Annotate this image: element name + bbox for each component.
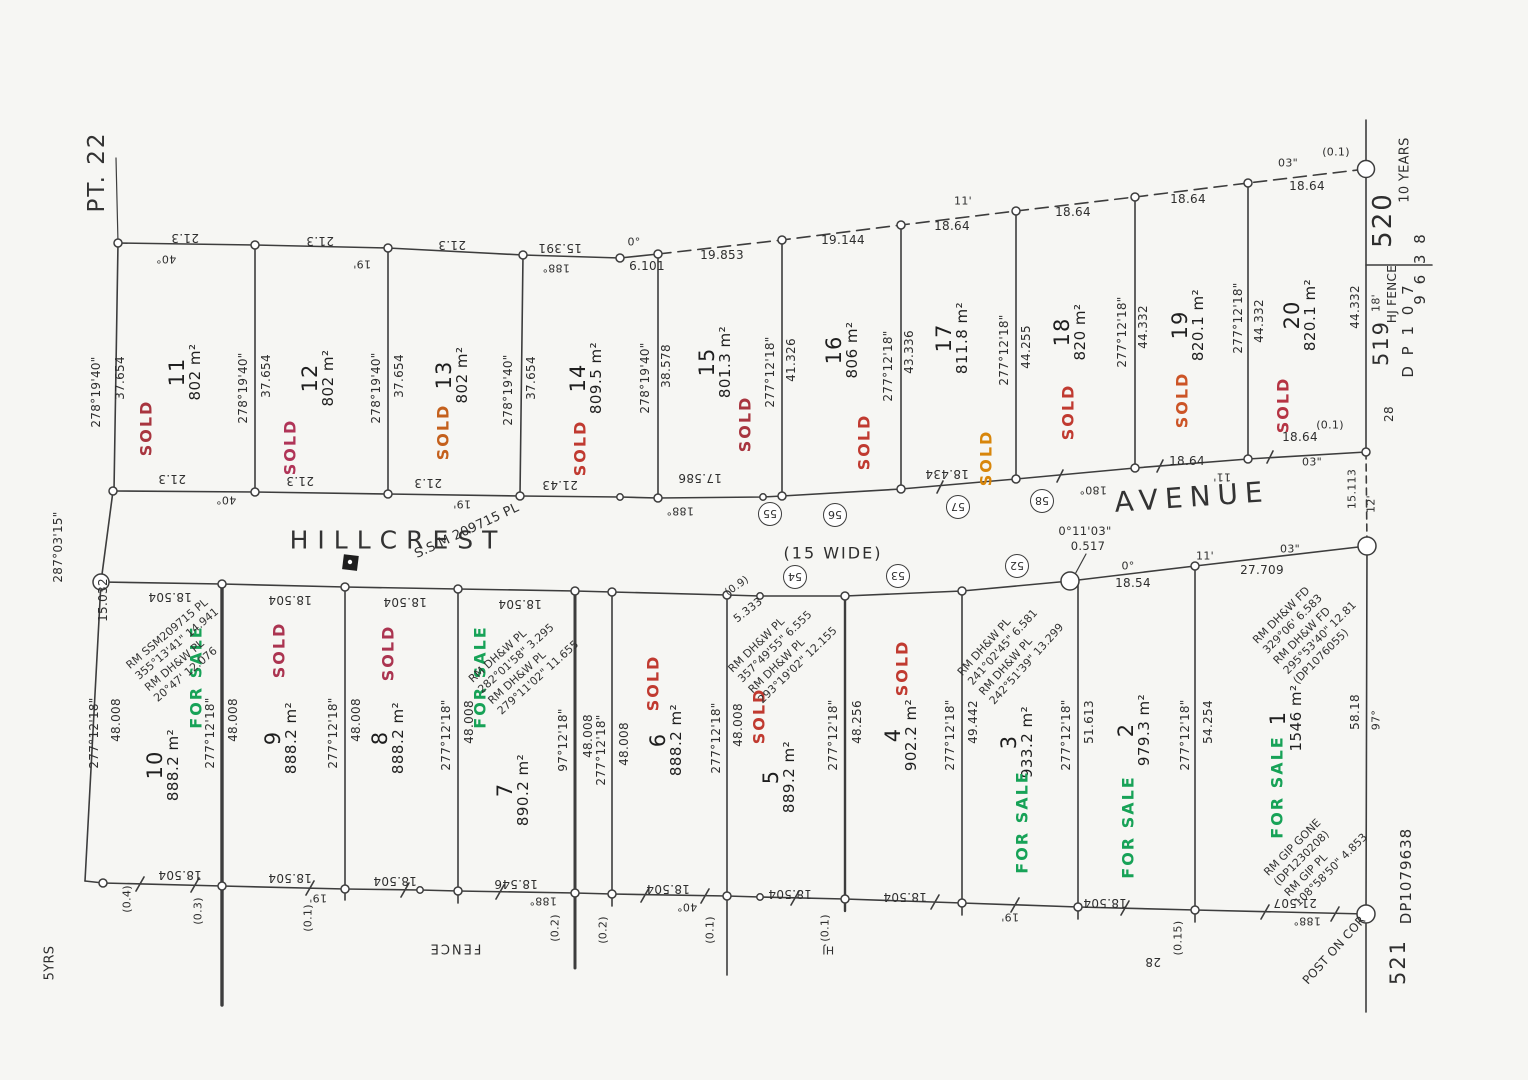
lot-2: 2979.3 m²	[1115, 694, 1153, 766]
dim-label: 18.504	[883, 890, 927, 904]
lot-area: 902.2 m²	[904, 699, 920, 771]
street-mark: 52	[1005, 554, 1029, 578]
angle-label: 0°	[627, 236, 640, 249]
lot-6: 6888.2 m²	[647, 704, 685, 776]
lot-status: SOLD	[855, 414, 874, 471]
dim-label: 6.101	[629, 259, 665, 273]
lot-12: 12802 m²	[299, 349, 337, 406]
lot-number: 16	[823, 321, 845, 378]
dp-number-bottom: DP1079638	[1397, 828, 1415, 924]
lot-number: 20	[1281, 279, 1303, 351]
angle-label: 40°	[677, 901, 697, 914]
boundary-bearing: 277°12'18"	[881, 330, 895, 401]
lot-area: 888.2 m²	[284, 702, 300, 774]
offset-label: (0.3)	[192, 897, 205, 925]
lot-area: 979.3 m²	[1137, 694, 1153, 766]
lot-area: 820.1 m²	[1303, 279, 1319, 351]
lot-area: 1546 m²	[1289, 684, 1305, 751]
boundary-distance: 44.332	[1136, 305, 1150, 349]
lot-number: 7	[494, 754, 516, 826]
lot-area: 889.2 m²	[782, 741, 798, 813]
fence-note-right: HJ FENCE	[1385, 265, 1399, 323]
boundary-distance: 51.613	[1082, 700, 1096, 744]
adjoining-lot-521: 521	[1386, 939, 1410, 985]
dim-label: 21.3	[286, 474, 314, 488]
boundary-distance: 43.336	[902, 330, 916, 374]
boundary-bearing: 277°12'18"	[997, 314, 1011, 385]
lot-number: 2	[1115, 694, 1137, 766]
boundary-distance: 48.008	[581, 714, 595, 758]
boundary-bearing: 277°12'18"	[594, 714, 608, 785]
boundary-bearing: 97°12'18"	[556, 708, 570, 771]
lot-status: SOLD	[893, 640, 912, 697]
angle-label: 11'	[1213, 471, 1231, 484]
street-mark: 56	[823, 503, 847, 527]
angle-label: 40°	[216, 494, 236, 507]
fence-note: HJ	[822, 944, 834, 957]
lot-area: 890.2 m²	[516, 754, 532, 826]
dim-label: 21.3	[171, 231, 199, 245]
boundary-distance: 41.326	[784, 338, 798, 382]
lot-number: 3	[998, 706, 1020, 778]
dim-label: 15.391	[538, 241, 582, 255]
boundary-bearing: 277°12'18"	[709, 702, 723, 773]
lot-17: 17811.8 m²	[933, 302, 971, 374]
dim-label: 27.709	[1240, 563, 1284, 577]
boundary-distance: 48.008	[731, 703, 745, 747]
lot-number: 5	[760, 741, 782, 813]
lot-16: 16806 m²	[823, 321, 861, 378]
lot-status: FOR SALE	[1119, 775, 1138, 878]
lot-status: FOR SALE	[1268, 735, 1287, 838]
boundary-distance: 37.654	[113, 356, 127, 400]
angle-label: 19'	[1001, 911, 1019, 924]
angle-label: 188°	[542, 262, 570, 275]
ssm-square-icon	[342, 554, 359, 571]
boundary-bearing: 277°12'18"	[826, 699, 840, 770]
lot-number: 18	[1051, 303, 1073, 360]
lot-area: 801.3 m²	[718, 326, 734, 398]
boundary-bearing: 278°19'40"	[89, 356, 103, 427]
lot-area: 933.2 m²	[1020, 706, 1036, 778]
lot-status: SOLD	[644, 655, 663, 712]
lot-status: SOLD	[977, 430, 996, 487]
boundary-bearing: 278°19'40"	[501, 354, 515, 425]
boundary-bearing: 277°12'18"	[943, 699, 957, 770]
lot-status: SOLD	[270, 622, 289, 679]
lot-18: 18820 m²	[1051, 303, 1089, 360]
dim-label: 21.3	[306, 234, 334, 248]
boundary-distance: 48.008	[617, 722, 631, 766]
boundary-distance: 37.654	[524, 356, 538, 400]
lot-status: SOLD	[1274, 377, 1293, 434]
lot-status: SOLD	[137, 400, 156, 457]
lot-area: 811.8 m²	[955, 302, 971, 374]
street-mark: 58	[1030, 489, 1054, 513]
boundary-distance: 44.255	[1019, 325, 1033, 369]
street-mark: 54	[783, 565, 807, 589]
dim-label: 18.504	[268, 593, 312, 607]
lot-14: 14809.5 m²	[567, 342, 605, 414]
bend-bearing-label: 0°11'03"	[1058, 524, 1111, 538]
street-mark: 53	[886, 564, 910, 588]
offset-label: (0.15)	[1172, 921, 1185, 956]
lot-number: 8	[369, 702, 391, 774]
dim-label: 18.504	[383, 595, 427, 609]
dim-label: 18.64	[1169, 454, 1205, 468]
angle-label: 188°	[666, 505, 694, 518]
lot-7: 7890.2 m²	[494, 754, 532, 826]
boundary-bearing: 277°12'18"	[1059, 699, 1073, 770]
boundary-bearing: 278°19'40"	[638, 342, 652, 413]
dim-label: 18.64	[934, 219, 970, 233]
gap-minutes: 12'	[1365, 495, 1378, 513]
lot-number: 17	[933, 302, 955, 374]
mark-28: 28	[1382, 406, 1396, 422]
boundary-distance: 38.578	[659, 344, 673, 388]
lot-number: 4	[882, 699, 904, 771]
lot-number: 12	[299, 349, 321, 406]
lot-number: 15	[696, 326, 718, 398]
dim-label: 18.64	[1282, 430, 1318, 444]
boundary-bearing: 18'	[1370, 294, 1383, 312]
angle-label: 19'	[353, 258, 371, 271]
lot-8: 8888.2 m²	[369, 702, 407, 774]
lot-20: 20820.1 m²	[1281, 279, 1319, 351]
dim-label: 28	[1145, 955, 1161, 969]
angle-label: 0°	[1121, 560, 1134, 573]
lot-status: SOLD	[379, 625, 398, 682]
dim-label: 18.504	[373, 874, 417, 888]
lot-number: 9	[262, 702, 284, 774]
angle-label: 11'	[954, 195, 972, 208]
boundary-distance: 58.18	[1348, 694, 1362, 730]
boundary-distance: 44.332	[1348, 285, 1362, 329]
angle-label: 19'	[453, 498, 471, 511]
corner-year-note: 5YRS	[43, 946, 58, 981]
dim-label: 18.504	[768, 887, 812, 901]
boundary-distance: 48.256	[850, 700, 864, 744]
angle-label: 188°	[529, 895, 557, 908]
offset-label: (0.4)	[121, 885, 134, 913]
dim-label: 21.3	[438, 238, 466, 252]
lot-number: 10	[144, 729, 166, 801]
boundary-distance: 48.008	[349, 698, 363, 742]
lot-status: SOLD	[1173, 372, 1192, 429]
dim-label: 18.64	[1055, 205, 1091, 219]
boundary-bearing: 277°12'18"	[203, 697, 217, 768]
angle-label: 03"	[1302, 456, 1322, 469]
lot-number: 19	[1169, 289, 1191, 361]
dim-label: 18.504	[498, 597, 542, 611]
dim-label: 18.504	[1083, 896, 1127, 910]
boundary-bearing: 277°12'18"	[1231, 282, 1245, 353]
dim-label: 18.64	[1170, 192, 1206, 206]
offset-label: (0.1)	[1316, 419, 1344, 432]
angle-label: 03"	[1280, 543, 1300, 556]
west-boundary-bearing: 287°03'15"	[51, 511, 65, 582]
west-boundary-distance: 15.032	[96, 578, 110, 622]
lot-9: 9888.2 m²	[262, 702, 300, 774]
boundary-distance: 48.008	[109, 698, 123, 742]
dim-label: 18.504	[148, 590, 192, 604]
lot-13: 13802 m²	[433, 346, 471, 403]
bend-distance-label: 0.517	[1071, 539, 1105, 553]
lot-number: 11	[166, 343, 188, 400]
angle-label: 188°	[1293, 915, 1321, 928]
angle-label: 40°	[156, 253, 176, 266]
boundary-distance: 37.654	[259, 354, 273, 398]
lot-area: 888.2 m²	[391, 702, 407, 774]
boundary-bearing: 277°12'18"	[763, 336, 777, 407]
lot-status: SOLD	[281, 419, 300, 476]
gap-distance: 15.113	[1346, 469, 1359, 509]
boundary-distance: 48.008	[462, 700, 476, 744]
lot-area: 806 m²	[845, 321, 861, 378]
dim-label: 18.54	[1115, 576, 1151, 590]
region-label: PT. 22	[84, 131, 110, 212]
adjoining-lot-520: 520	[1368, 192, 1398, 248]
offset-label: (0.2)	[597, 916, 610, 944]
lot-area: 802 m²	[188, 343, 204, 400]
boundary-bearing: 277°12'18"	[439, 699, 453, 770]
years-note: 10 YEARS	[1398, 137, 1413, 202]
boundary-bearing: 277°12'18"	[1115, 296, 1129, 367]
dim-label: 21.3	[158, 472, 186, 486]
lot-area: 820.1 m²	[1191, 289, 1207, 361]
boundary-distance: 37.654	[392, 354, 406, 398]
lot-area: 802 m²	[321, 349, 337, 406]
dim-label: 18.546	[494, 877, 538, 891]
dim-label: 18.504	[158, 868, 202, 882]
lot-number: 14	[567, 342, 589, 414]
lot-status: SOLD	[571, 420, 590, 477]
boundary-distance: 44.332	[1252, 299, 1266, 343]
lot-area: 888.2 m²	[166, 729, 182, 801]
lot-4: 4902.2 m²	[882, 699, 920, 771]
street-mark: 57	[946, 495, 970, 519]
fence-word: FENCE	[429, 941, 482, 956]
lot-status: FOR SALE	[1013, 770, 1032, 873]
lot-10: 10888.2 m²	[144, 729, 182, 801]
lot-status: SOLD	[1059, 384, 1078, 441]
dim-label: 18.504	[646, 882, 690, 896]
lot-area: 809.5 m²	[589, 342, 605, 414]
lot-number: 13	[433, 346, 455, 403]
adjoining-lot-519: 519	[1369, 320, 1393, 366]
lot-area: 802 m²	[455, 346, 471, 403]
boundary-distance: 48.008	[226, 698, 240, 742]
dim-label: 18.434	[925, 467, 969, 481]
boundary-distance: 54.254	[1201, 700, 1215, 744]
lot-11: 11802 m²	[166, 343, 204, 400]
dim-label: 21.3	[414, 476, 442, 490]
lot-status: SOLD	[434, 404, 453, 461]
lot-5: 5889.2 m²	[760, 741, 798, 813]
dim-label: 17.586	[678, 471, 722, 485]
boundary-distance: 49.442	[966, 700, 980, 744]
boundary-bearing: 277°12'18"	[87, 697, 101, 768]
dp-number-label: D P 1 0 7	[1399, 282, 1417, 377]
lot-number: 6	[647, 704, 669, 776]
lot-3: 3933.2 m²	[998, 706, 1036, 778]
dim-label: 21.43	[542, 478, 578, 492]
dim-label: 18.64	[1289, 179, 1325, 193]
boundary-bearing: 277°12'18"	[1178, 699, 1192, 770]
lot-status: SOLD	[736, 396, 755, 453]
boundary-bearing: 278°19'40"	[369, 352, 383, 423]
offset-label: (0.1)	[302, 904, 315, 932]
angle-label: 19'	[309, 892, 327, 905]
boundary-bearing: 278°19'40"	[236, 352, 250, 423]
lot-19: 19820.1 m²	[1169, 289, 1207, 361]
street-mark: 55	[758, 502, 782, 526]
boundary-bearing: 97°	[1370, 710, 1383, 730]
dim-label: 18.504	[268, 871, 312, 885]
dim-label: 19.144	[821, 233, 865, 247]
offset-label: (0.1)	[704, 916, 717, 944]
dim-label: 19.853	[700, 248, 744, 262]
lot-15: 15801.3 m²	[696, 326, 734, 398]
lot-area: 820 m²	[1073, 303, 1089, 360]
offset-label: (0.2)	[549, 914, 562, 942]
angle-label: 03"	[1278, 157, 1298, 170]
street-width-note: (15 WIDE)	[784, 544, 883, 563]
offset-label: (0.1)	[1322, 146, 1350, 159]
subdivision-plan: PT. 22 5YRS HILLCREST (15 WIDE) AVENUE S…	[0, 0, 1528, 1080]
lot-area: 888.2 m²	[669, 704, 685, 776]
offset-label: (0.1)	[819, 914, 832, 942]
boundary-bearing: 277°12'18"	[326, 697, 340, 768]
angle-label: 180°	[1079, 484, 1107, 497]
angle-label: 11'	[1196, 550, 1214, 563]
